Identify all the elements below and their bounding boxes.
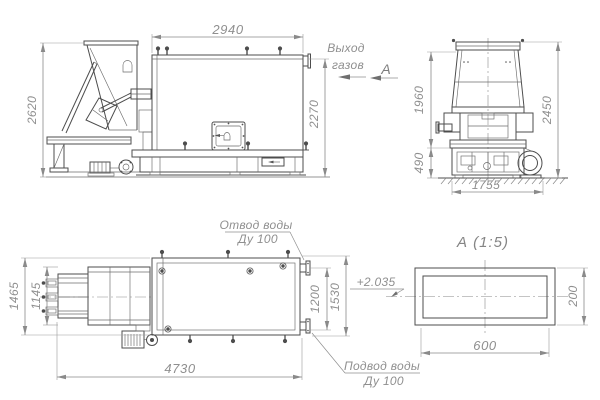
dim-detail-duct-width: 600 bbox=[473, 338, 497, 353]
dim-detail-duct-height: 200 bbox=[566, 285, 580, 307]
water-outlet-dn-label: Ду 100 bbox=[236, 232, 278, 246]
dim-front-height-hopper: 1960 bbox=[412, 86, 426, 114]
gas-outlet-annotation: Выход газов А bbox=[327, 41, 398, 81]
side-view: 2940 2620 2270 bbox=[25, 22, 330, 177]
level-mark-arrow bbox=[391, 291, 398, 297]
gas-outlet-label-word1: Выход bbox=[327, 41, 365, 55]
level-mark-label: +2.035 bbox=[357, 275, 396, 289]
dim-side-height-gas-outlet: 2270 bbox=[307, 100, 321, 129]
technical-drawing-canvas: 2940 2620 2270 Выход газов А bbox=[0, 0, 600, 400]
dim-front-width-overall: 1755 bbox=[472, 178, 500, 192]
gas-outlet-label-word2: газов bbox=[332, 58, 364, 72]
detail-view-title: А (1:5) bbox=[456, 234, 509, 251]
dim-front-height-base: 490 bbox=[412, 152, 426, 173]
detail-view-a: А (1:5) 200 600 bbox=[386, 234, 588, 357]
dim-side-height-overall: 2620 bbox=[25, 96, 39, 125]
section-view-arrow bbox=[370, 75, 381, 80]
dim-plan-body-width: 1530 bbox=[328, 283, 342, 311]
dim-plan-width-feeder: 1145 bbox=[29, 282, 43, 309]
gas-flow-arrow bbox=[338, 74, 350, 79]
front-view: 1960 490 2450 1755 bbox=[412, 38, 568, 195]
dim-plan-flange-spacing: 1200 bbox=[308, 285, 322, 313]
section-view-letter: А bbox=[380, 61, 390, 77]
technical-drawing-sheet: 2940 2620 2270 Выход газов А bbox=[0, 0, 600, 400]
plan-view: 1465 1145 4730 1200 1530 Отвод воды Ду 1… bbox=[7, 218, 420, 388]
water-supply-label: Подвод воды bbox=[344, 359, 420, 373]
dim-side-length-body: 2940 bbox=[211, 22, 243, 37]
water-outlet-label: Отвод воды bbox=[219, 218, 292, 232]
dim-plan-width-overall: 1465 bbox=[7, 282, 21, 310]
dim-front-height-overall: 2450 bbox=[540, 96, 554, 125]
water-supply-dn-label: Ду 100 bbox=[362, 374, 404, 388]
dim-plan-length-overall: 4730 bbox=[164, 361, 195, 376]
